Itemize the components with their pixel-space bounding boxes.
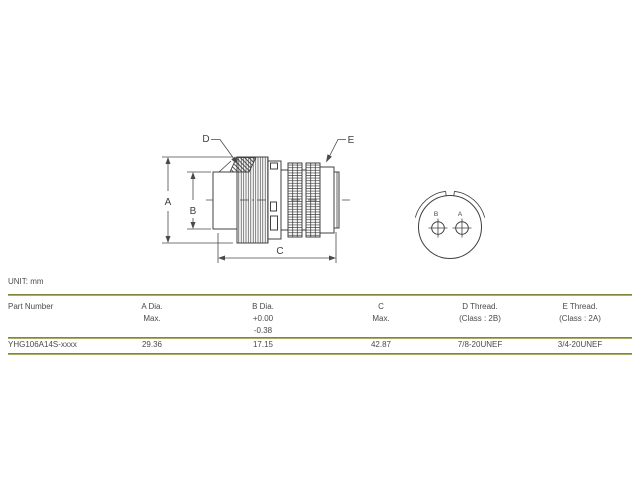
bayonet-slot-low (271, 216, 278, 230)
header-e-thread: E Thread. (515, 301, 640, 313)
pin-b-label: B (434, 211, 438, 218)
header-b-dia-plus-tol: +0.00 (213, 313, 313, 325)
dim-d-label: D (202, 134, 209, 145)
pin-a-label: A (458, 211, 463, 218)
header-b-dia: B Dia. (213, 301, 313, 313)
connector-datasheet: A B C D E (0, 0, 640, 480)
value-a-dia: 29.36 (102, 339, 202, 351)
connector-drawing: A B C D E (0, 0, 640, 280)
table-col-a-dia: A Dia. Max. 29.36 (102, 301, 202, 361)
header-spacer (515, 325, 640, 337)
dim-e-label: E (348, 135, 355, 146)
insert-face-circle (419, 196, 482, 259)
dimension-b: B (187, 172, 211, 229)
dim-a-label: A (165, 197, 172, 208)
front-thread-body (320, 167, 334, 233)
side-view (206, 157, 350, 243)
header-a-dia: A Dia. (102, 301, 202, 313)
header-spacer (102, 325, 202, 337)
rib-band-2 (306, 163, 320, 237)
table-col-e-thread: E Thread. (Class : 2A) 3/4-20UNEF (515, 301, 640, 361)
dim-c-label: C (276, 246, 283, 257)
header-e-thread-class: (Class : 2A) (515, 313, 640, 325)
value-b-dia: 17.15 (213, 339, 313, 351)
shell-chamfer-line (219, 161, 231, 172)
header-b-dia-minus-tol: -0.38 (213, 325, 313, 337)
table-rule-top (8, 294, 632, 296)
front-end-cap (334, 172, 339, 228)
neck-groove-2 (302, 170, 306, 230)
bayonet-pin-top (271, 163, 278, 169)
callout-d: D (202, 134, 238, 165)
table-col-b-dia: B Dia. +0.00 -0.38 17.15 (213, 301, 313, 361)
dim-b-label: B (190, 206, 197, 217)
unit-label: UNIT: mm (8, 277, 44, 286)
value-e-thread: 3/4-20UNEF (515, 339, 640, 351)
callout-e: E (326, 135, 355, 163)
neck-groove-1 (281, 170, 288, 230)
bayonet-slot-mid (271, 202, 277, 211)
header-a-dia-max: Max. (102, 313, 202, 325)
front-view: B A (415, 191, 485, 258)
rear-shell (213, 172, 237, 229)
rib-band-1 (288, 163, 302, 237)
